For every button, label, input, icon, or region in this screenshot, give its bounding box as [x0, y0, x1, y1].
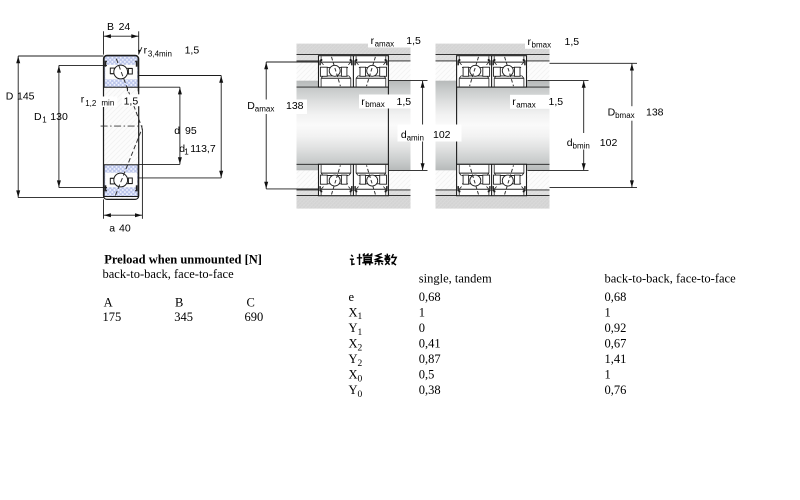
svg-text:Preload when unmounted [N]: Preload when unmounted [N]	[104, 252, 262, 266]
svg-text:1: 1	[184, 147, 189, 156]
svg-text:345: 345	[174, 310, 193, 324]
svg-text:d: d	[174, 125, 180, 137]
svg-text:1,5: 1,5	[549, 96, 564, 108]
svg-text:bmax: bmax	[615, 111, 635, 120]
svg-text:1,5: 1,5	[406, 35, 421, 47]
svg-text:min: min	[101, 99, 114, 108]
svg-text:0,41: 0,41	[419, 337, 441, 351]
svg-text:145: 145	[17, 90, 35, 102]
svg-text:40: 40	[119, 223, 131, 235]
svg-text:1: 1	[42, 116, 47, 125]
svg-text:bmax: bmax	[365, 100, 385, 109]
svg-text:0,92: 0,92	[605, 321, 627, 335]
svg-text:130: 130	[50, 111, 68, 123]
svg-text:amin: amin	[407, 133, 424, 142]
svg-text:0,67: 0,67	[605, 337, 627, 351]
svg-text:1,41: 1,41	[605, 352, 627, 366]
svg-text:1,5: 1,5	[124, 96, 139, 108]
svg-text:1: 1	[419, 305, 425, 319]
svg-text:24: 24	[119, 21, 131, 33]
svg-text:back-to-back, face-to-face: back-to-back, face-to-face	[103, 267, 235, 281]
svg-text:690: 690	[245, 310, 264, 324]
svg-text:1: 1	[605, 368, 611, 382]
svg-text:1,2: 1,2	[85, 99, 97, 108]
svg-text:0,38: 0,38	[419, 383, 441, 397]
svg-text:1,5: 1,5	[565, 36, 580, 48]
svg-text:0,5: 0,5	[419, 368, 435, 382]
svg-text:0,76: 0,76	[605, 383, 627, 397]
svg-text:1: 1	[358, 312, 363, 322]
svg-text:0,68: 0,68	[419, 290, 441, 304]
svg-text:a: a	[109, 223, 115, 235]
svg-text:amax: amax	[255, 104, 275, 113]
svg-text:single, tandem: single, tandem	[419, 272, 492, 286]
svg-text:0,87: 0,87	[419, 352, 441, 366]
svg-text:1,5: 1,5	[185, 44, 200, 56]
svg-text:1: 1	[358, 328, 363, 338]
svg-text:3,4min: 3,4min	[148, 50, 172, 59]
svg-text:0: 0	[358, 390, 363, 400]
svg-text:138: 138	[646, 107, 664, 119]
svg-text:amax: amax	[375, 40, 395, 49]
svg-text:113,7: 113,7	[190, 143, 216, 155]
svg-text:0: 0	[358, 374, 363, 384]
svg-text:138: 138	[286, 100, 304, 112]
svg-text:2: 2	[358, 359, 363, 369]
svg-text:102: 102	[600, 137, 618, 149]
svg-text:X: X	[349, 305, 358, 319]
svg-text:2: 2	[358, 343, 363, 353]
svg-text:Y: Y	[349, 321, 358, 335]
svg-text:0: 0	[419, 321, 425, 335]
svg-text:B: B	[107, 21, 114, 33]
svg-text:95: 95	[185, 125, 197, 137]
svg-text:bmax: bmax	[532, 41, 552, 50]
svg-text:D: D	[6, 90, 14, 102]
svg-text:X: X	[349, 368, 358, 382]
svg-text:amax: amax	[516, 101, 536, 110]
svg-text:Y: Y	[349, 352, 358, 366]
svg-text:1,5: 1,5	[397, 96, 412, 108]
svg-text:back-to-back, face-to-face: back-to-back, face-to-face	[605, 272, 737, 286]
svg-text:1: 1	[605, 305, 611, 319]
svg-text:D: D	[34, 111, 42, 123]
svg-text:175: 175	[103, 310, 122, 324]
svg-text:C: C	[247, 296, 255, 310]
svg-text:102: 102	[433, 129, 451, 141]
svg-text:A: A	[104, 296, 113, 310]
svg-text:r: r	[81, 94, 85, 106]
svg-text:B: B	[175, 296, 183, 310]
svg-text:0,68: 0,68	[605, 290, 627, 304]
svg-text:bmin: bmin	[573, 141, 590, 150]
svg-text:X: X	[349, 337, 358, 351]
svg-text:Y: Y	[349, 383, 358, 397]
svg-text:e: e	[349, 290, 355, 304]
